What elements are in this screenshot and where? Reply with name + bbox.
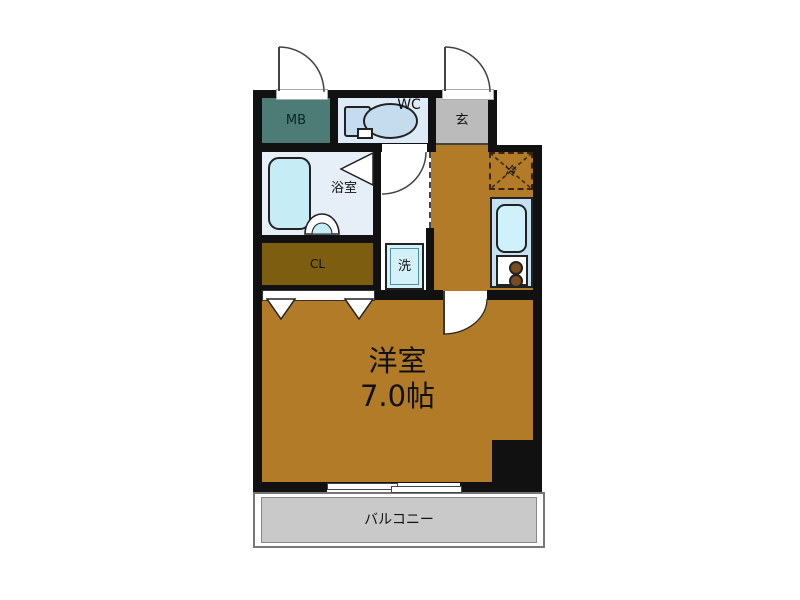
western-room-area: 7.0帖 [300,379,495,413]
laundry-label: 洗 [385,243,424,290]
mb-label: MB [262,98,330,143]
pillar [492,440,533,482]
bathtub-icon [268,157,311,230]
closet-doors-icon [262,290,375,301]
wall [253,235,381,243]
closet-label: CL [262,243,373,285]
toilet-flush-icon [357,128,373,139]
refrigerator-label: 冷 [489,152,533,190]
floor-plan-page: { "rooms": { "mb": { "label": "MB" }, "w… [0,0,800,600]
wc-label: WC [390,97,428,113]
kitchen-boundary-dashed [429,152,431,228]
door-opening [382,144,427,152]
entry-door-icon [445,47,490,92]
balcony-label: バルコニー [261,497,537,543]
entrance-step-line [436,143,488,145]
entrance-label: 玄 [436,98,488,143]
western-room-label: 洋室 [300,343,495,379]
wall [373,152,381,300]
wall [373,290,443,300]
door-opening [443,291,487,300]
wall [533,145,542,492]
floor-plan: MB WC 玄 浴室 CL 洗 冷 洋室 7.0帖 バルコニー [0,0,800,600]
entry-door-icon [279,47,324,92]
burner-icon [509,274,523,288]
wall [487,290,542,300]
stove-icon [496,255,528,286]
window-sash [327,483,398,490]
window-sash [391,486,462,493]
wall [330,96,338,145]
bathroom-label: 浴室 [316,180,372,198]
burner-icon [509,261,523,275]
kitchen-sink-icon [496,204,527,253]
